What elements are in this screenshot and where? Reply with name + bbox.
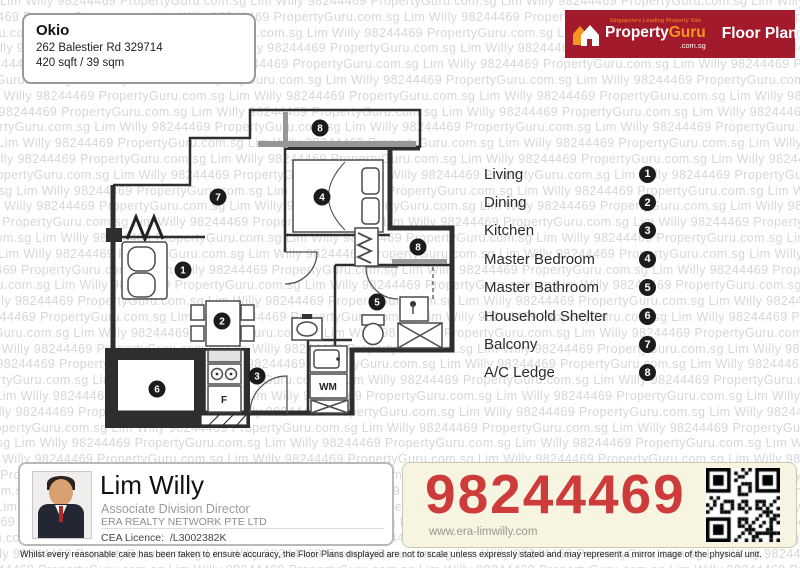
legend-number-badge: 8 xyxy=(639,364,656,381)
agent-website: www.era-limwilly.com xyxy=(429,526,537,538)
agent-company: ERA REALTY NETWORK PTE LTD xyxy=(101,516,267,528)
qr-code xyxy=(706,468,780,542)
legend-label: Household Shelter xyxy=(484,308,607,325)
fridge-label: F xyxy=(221,395,227,406)
legend-row: Dining2 xyxy=(484,188,656,216)
propertyguru-banner: Singapore's Leading Property Site Proper… xyxy=(565,10,795,58)
window-bar-ledge xyxy=(392,259,447,264)
entrance-sill xyxy=(201,414,247,425)
ac-hatch-bottom xyxy=(311,400,348,413)
brand-text: Singapore's Leading Property Site Proper… xyxy=(605,19,706,50)
legend-row: Household Shelter6 xyxy=(484,302,656,330)
legend-row: Living1 xyxy=(484,160,656,188)
legend-label: A/C Ledge xyxy=(484,364,555,381)
project-name: Okio xyxy=(36,22,242,39)
propertyguru-logo-icon xyxy=(571,21,601,48)
window-bar-left xyxy=(283,112,288,148)
legend-row: A/C Ledge8 xyxy=(484,359,656,387)
svg-text:2: 2 xyxy=(219,317,225,328)
agent-title: Associate Division Director xyxy=(101,502,250,516)
contact-card: 98244469 www.era-limwilly.com xyxy=(402,462,797,548)
ac-hatch-bathroom xyxy=(398,323,442,348)
svg-text:8: 8 xyxy=(415,243,421,254)
svg-text:3: 3 xyxy=(254,372,260,383)
kitchen-counter xyxy=(208,350,241,384)
agent-licence: CEA Licence: /L3002382K xyxy=(101,528,384,544)
bed xyxy=(293,160,383,232)
legend-number-badge: 6 xyxy=(639,308,656,325)
project-address: 262 Balestier Rd 329714 xyxy=(36,41,242,56)
legend-label: Balcony xyxy=(484,336,537,353)
wardrobe xyxy=(355,228,378,266)
legend-number-badge: 2 xyxy=(639,194,656,211)
folding-door-icon xyxy=(127,217,163,239)
sink-unit xyxy=(310,346,347,372)
toilet xyxy=(362,315,384,345)
wall-column xyxy=(106,228,122,242)
legend-number-badge: 7 xyxy=(639,336,656,353)
marker-ac-ledge-top: 8 xyxy=(312,120,329,137)
sofa xyxy=(122,242,167,299)
legend-row: Kitchen3 xyxy=(484,217,656,245)
svg-text:6: 6 xyxy=(154,385,160,396)
legend-label: Kitchen xyxy=(484,222,534,239)
banner-product-title: Floor Plans xyxy=(722,25,800,43)
legend-label: Master Bedroom xyxy=(484,251,595,268)
legend-number-badge: 3 xyxy=(639,222,656,239)
legend-label: Living xyxy=(484,166,523,183)
brand-name: PropertyGuru xyxy=(605,25,706,41)
brand-domain: .com.sg xyxy=(680,42,706,50)
legend-label: Dining xyxy=(484,194,527,211)
legend-number-badge: 4 xyxy=(639,251,656,268)
svg-text:1: 1 xyxy=(180,266,186,277)
corner-sink xyxy=(400,297,428,321)
marker-living: 1 xyxy=(175,262,192,279)
vanity-basin xyxy=(292,314,322,340)
marker-master-bathroom: 5 xyxy=(369,294,386,311)
marker-balcony: 7 xyxy=(210,189,227,206)
legend-number-badge: 5 xyxy=(639,279,656,296)
legend-row: Balcony7 xyxy=(484,330,656,358)
window-bar-top xyxy=(258,141,416,147)
floorplan-flyer: Lim Willy 98244469 PropertyGuru.com.sg L… xyxy=(0,0,800,568)
agent-phone-number: 98244469 xyxy=(425,467,686,522)
marker-master-bedroom: 4 xyxy=(314,189,331,206)
svg-text:8: 8 xyxy=(317,124,323,135)
agent-photo xyxy=(32,471,92,539)
legend-row: Master Bathroom5 xyxy=(484,274,656,302)
project-area: 420 sqft / 39 sqm xyxy=(36,56,242,71)
marker-dining: 2 xyxy=(214,313,231,330)
marker-kitchen: 3 xyxy=(249,368,266,385)
project-info-card: Okio 262 Balestier Rd 329714 420 sqft / … xyxy=(22,13,256,84)
legend: Living1Dining2Kitchen3Master Bedroom4Mas… xyxy=(484,160,656,387)
legend-row: Master Bedroom4 xyxy=(484,245,656,273)
svg-text:7: 7 xyxy=(215,193,221,204)
bedroom-door-arc xyxy=(285,252,317,284)
svg-text:5: 5 xyxy=(374,298,380,309)
svg-text:4: 4 xyxy=(319,193,325,204)
wm-label: WM xyxy=(319,382,337,393)
agent-name: Lim Willy xyxy=(100,470,204,501)
agent-card: Lim Willy Associate Division Director ER… xyxy=(18,462,394,546)
marker-ac-ledge-right: 8 xyxy=(410,239,427,256)
legend-label: Master Bathroom xyxy=(484,279,599,296)
disclaimer-text: Whilst every reasonable care has been ta… xyxy=(20,549,798,559)
bathroom-door-arc xyxy=(366,267,398,299)
marker-household-shelter: 6 xyxy=(149,381,166,398)
legend-number-badge: 1 xyxy=(639,166,656,183)
